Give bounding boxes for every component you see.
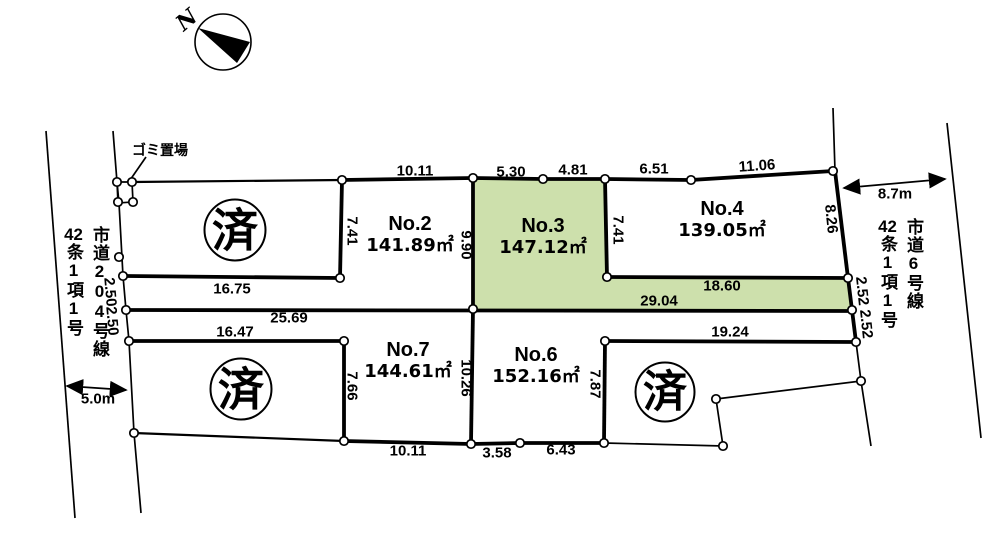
left-road-article-line: 42条1項1号 [60,226,86,386]
garbage-area-label: ゴミ置場 [132,140,188,160]
plot-no3-area: 147.12㎡ [499,237,586,258]
plot-no2-label: No.2 141.89㎡ [366,214,453,256]
mid-horizontal-boundary [126,310,856,311]
plot-no2-area: 141.89㎡ [366,235,453,256]
left-road-name-line: 市道204号線 [86,226,112,386]
sold-upper-bottom-edge [123,276,340,278]
dimension-label: 5.30 [496,164,525,181]
right-road-outer-edge [947,123,981,438]
dimension-label: 2.52 [856,309,876,340]
dimension-label: 25.69 [270,310,308,327]
sold-upper-lot-top-edge [132,180,342,182]
right-road-inner-edge-upper [833,108,835,171]
sold-lower-lot-bottom-edge [134,433,344,441]
sold-stamp-lower-left: 済 [210,358,273,421]
dimension-label: 2.52 [852,276,872,307]
site-plan: N ゴミ置場 10.115.304.816.5111.067.419.907.4… [0,0,1000,536]
dimension-label: 16.75 [213,281,251,298]
right-road-name: 市道6号線 42条1項1号 [874,218,926,368]
compass [195,14,251,70]
dimension-label: 18.60 [703,278,741,295]
dimension-label: 4.81 [558,162,587,179]
compass-needle-icon [198,28,250,63]
plot-no6-area: 152.16㎡ [492,366,579,387]
dimension-label: 16.47 [216,324,254,341]
right-road-inner-edge-lower [856,342,871,446]
dimension-label: 10.26 [458,359,475,397]
left-road-width-arrow [67,386,126,390]
right-road-article-line: 42条1項1号 [874,218,900,368]
dimension-label: 10.11 [390,443,427,460]
dimension-label: 7.87 [587,369,604,398]
plot-no7-area: 144.61㎡ [364,361,451,382]
dimension-label: 29.04 [640,293,678,310]
left-road-name: 市道204号線 42条1項1号 [60,226,112,386]
dimension-label: 7.41 [344,216,361,245]
dimension-label: 7.66 [344,371,361,400]
no6-east-edge [604,341,605,443]
right-road-name-line: 市道6号線 [900,218,926,368]
no6-strip-bottom-edge [605,341,856,342]
dimension-label: 11.06 [738,156,776,176]
dimension-label: 3.58 [482,445,511,462]
plot-no4-name: No.4 [678,199,765,220]
plot-no2-name: No.2 [366,214,453,235]
plot-no4-area: 139.05㎡ [678,220,765,241]
plot-no3-name: No.3 [499,216,586,237]
plot-no3-label: No.3 147.12㎡ [499,216,586,258]
dimension-label: 10.11 [397,163,434,180]
no3-no4-boundary [605,179,607,277]
dimension-label: 8.26 [821,204,841,235]
plot-no7-name: No.7 [364,340,451,361]
dimension-label: 6.51 [639,161,668,178]
no2-west-edge [340,180,342,278]
sold-stamp-lower-right: 済 [635,362,696,423]
plot-no7-label: No.7 144.61㎡ [364,340,451,382]
plot-no4-label: No.4 139.05㎡ [678,199,765,241]
plot-no6-label: No.6 152.16㎡ [492,345,579,387]
sold-stamp-upper-left: 済 [204,199,267,262]
plot-no6-name: No.6 [492,345,579,366]
dimension-label: 6.43 [546,442,575,459]
right-road-width-label: 8.7m [878,186,912,203]
dimension-label: 19.24 [711,324,749,341]
left-road-width-label: 5.0m [81,391,115,408]
dimension-label: 7.41 [610,215,627,244]
dimension-label: 9.90 [458,230,475,259]
